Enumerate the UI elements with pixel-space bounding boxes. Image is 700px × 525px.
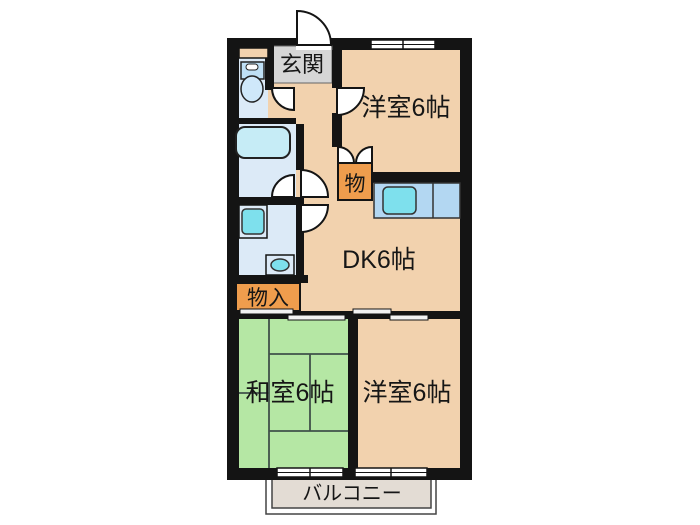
floorplan-canvas: 玄関 洋室6帖 物 DK6帖 物入 和室6帖 洋室6帖 バルコニー bbox=[0, 0, 700, 525]
label-western-room-bottom: 洋室6帖 bbox=[363, 379, 452, 407]
wall-hall-east-upper bbox=[332, 50, 342, 88]
bathtub-icon bbox=[236, 127, 290, 158]
japanese-room-slider-b bbox=[288, 315, 345, 320]
western-room-slider-a bbox=[353, 309, 391, 314]
wall-toilet-bottom bbox=[239, 118, 296, 124]
label-storage: 物入 bbox=[247, 287, 289, 310]
washing-machine-icon bbox=[239, 205, 267, 238]
kitchen-counter bbox=[374, 183, 460, 218]
entrance-door-arc bbox=[297, 11, 331, 45]
washbasin-icon bbox=[266, 255, 294, 275]
wall-hall-east-lower bbox=[332, 113, 342, 147]
kitchen-sink-icon bbox=[383, 187, 416, 214]
wall-room-divider bbox=[348, 319, 358, 468]
window-top bbox=[371, 40, 435, 49]
label-genkan: 玄関 bbox=[280, 52, 324, 77]
western-room-slider-b bbox=[390, 315, 428, 320]
label-balcony: バルコニー bbox=[302, 483, 402, 505]
window-balcony-left bbox=[277, 468, 343, 477]
label-dining-kitchen: DK6帖 bbox=[342, 246, 416, 274]
toilet-icon bbox=[241, 62, 264, 102]
wall-storage-top bbox=[236, 275, 308, 283]
wall-bath-bottom bbox=[239, 197, 304, 205]
wall-bath-right bbox=[296, 124, 304, 170]
wall-toilet-right bbox=[265, 38, 274, 90]
label-japanese-room: 和室6帖 bbox=[246, 379, 335, 407]
toilet-shelf bbox=[239, 48, 268, 58]
window-balcony-right bbox=[355, 468, 427, 477]
label-western-room-top: 洋室6帖 bbox=[362, 94, 451, 122]
wall-dk-north bbox=[366, 172, 460, 183]
label-closet-top: 物 bbox=[345, 173, 366, 196]
floorplan-drawing: 玄関 洋室6帖 物 DK6帖 物入 和室6帖 洋室6帖 バルコニー bbox=[0, 0, 700, 525]
